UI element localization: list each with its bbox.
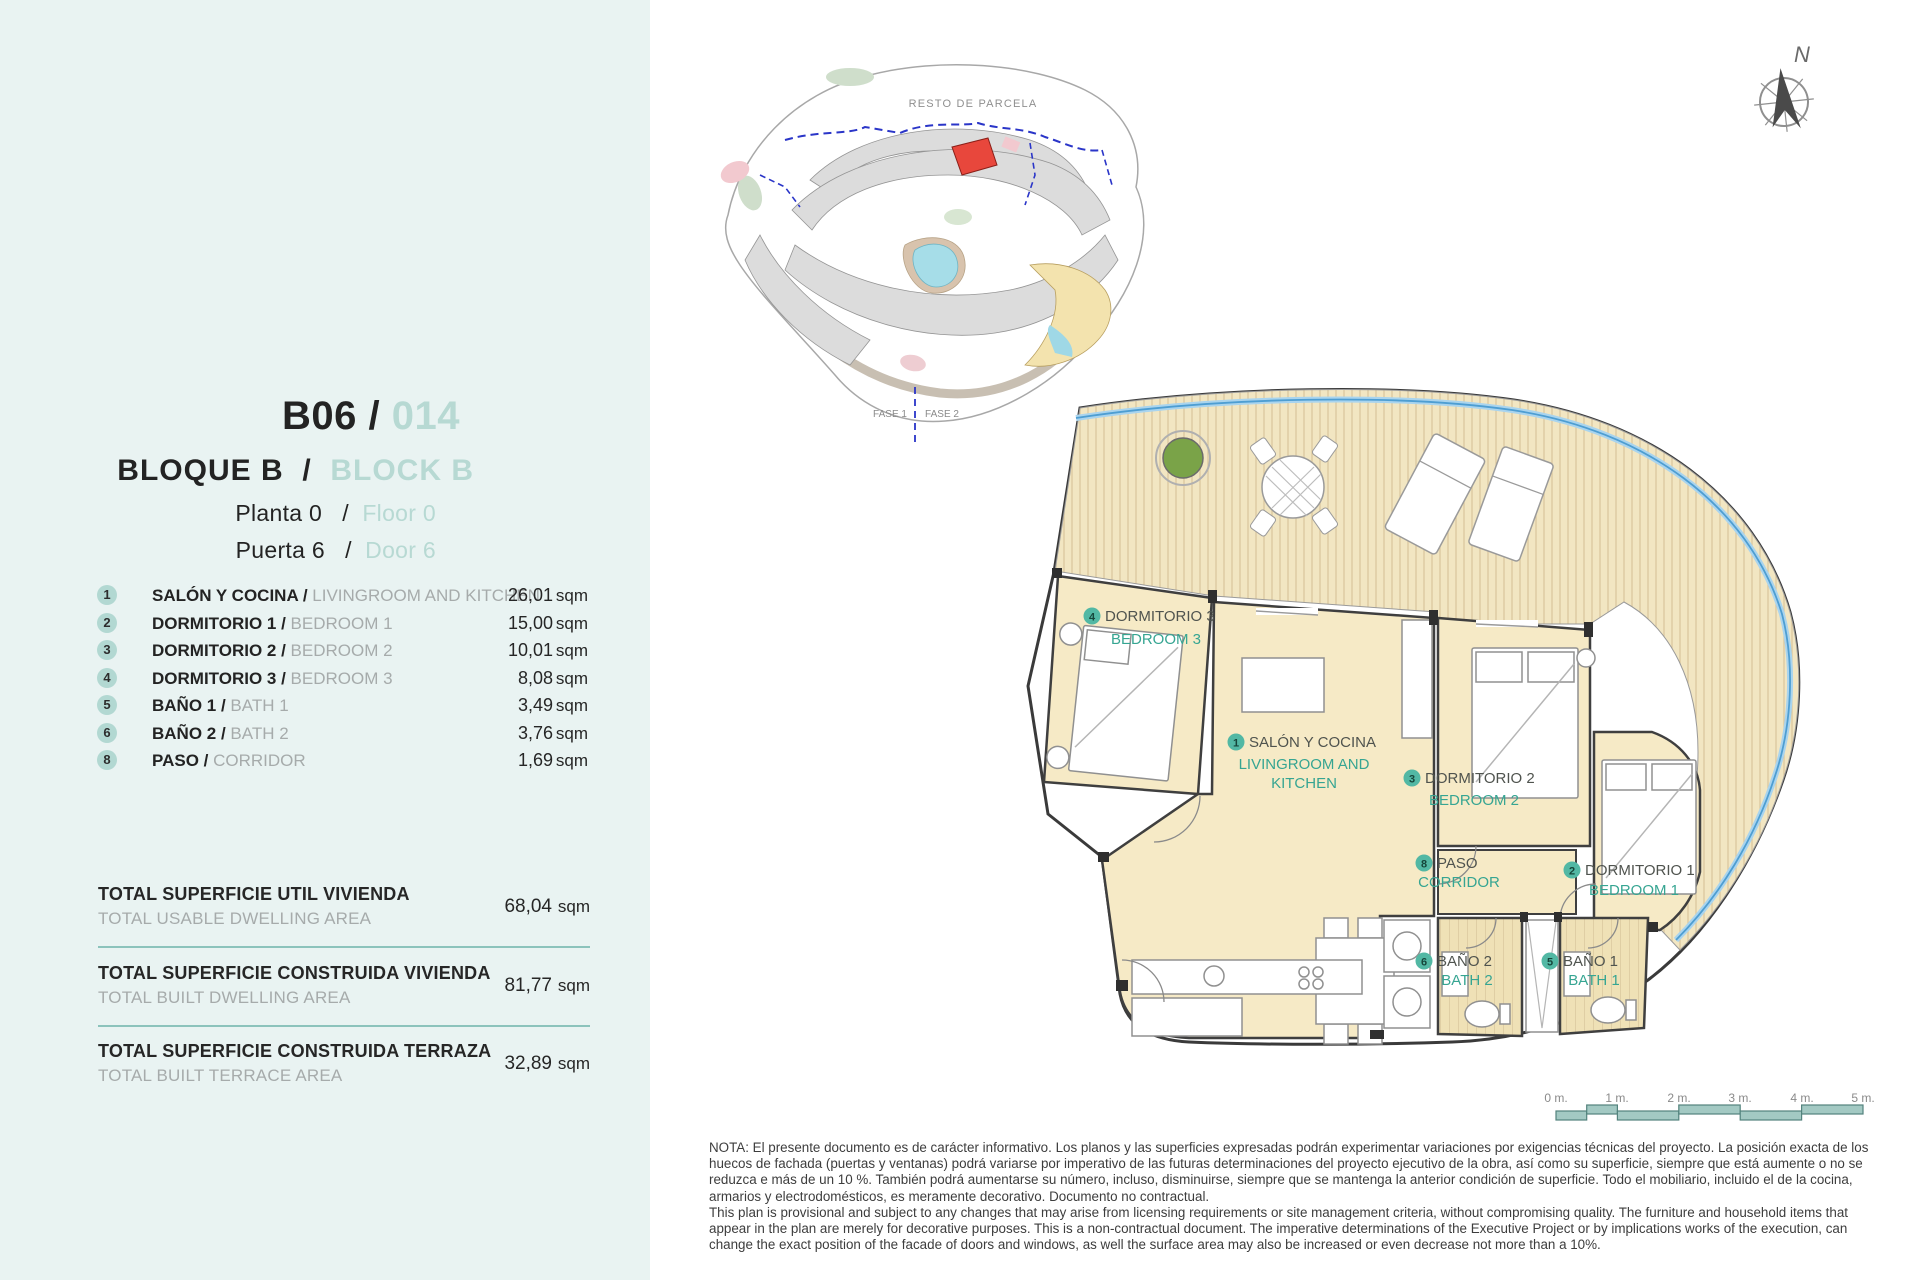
floor-separator: / [329,500,356,526]
room-area-unit: sqm [556,751,588,771]
resto-de-parcela-label: RESTO DE PARCELA [909,98,1038,110]
door-separator: / [332,537,359,563]
floorplan-document-page: { "unit": { "code": "B06", "separator": … [0,0,1920,1280]
room-area-unit: sqm [556,641,588,661]
door-es: Puerta 6 [236,537,325,563]
floor-es: Planta 0 [235,500,322,526]
total-usable-area: TOTAL SUPERFICIE UTIL VIVIENDA TOTAL USA… [98,884,590,929]
label-num: 8 [1421,859,1427,871]
room-area: 3,49 [518,695,553,716]
label-num: 4 [1089,612,1096,624]
label-num: 3 [1409,774,1415,786]
cabinet [1402,620,1432,738]
room-area: 3,76 [518,723,553,744]
north-label: N [1794,42,1810,67]
legal-note: NOTA: El presente documento es de caráct… [709,1140,1859,1253]
scale-tick-label: 2 m. [1667,1091,1690,1105]
label-es: DORMITORIO 1 [1585,862,1695,879]
note-line: change the exact position of the facade … [709,1237,1859,1253]
room-number-badge: 2 [97,613,117,633]
block-en: BLOCK B [330,454,474,487]
room-area-unit: sqm [556,586,588,606]
room-name: DORMITORIO 2 / BEDROOM 2 [152,641,393,661]
label-en: KITCHEN [1271,775,1337,792]
room-number-badge: 5 [97,695,117,715]
label-en: CORRIDOR [1418,874,1500,891]
divider [98,946,590,948]
room-area-unit: sqm [556,614,588,634]
label-es: BAÑO 1 [1563,953,1618,970]
label-es: DORMITORIO 3 [1105,608,1215,625]
label-num: 2 [1569,866,1575,878]
total-built-terrace-area: TOTAL SUPERFICIE CONSTRUIDA TERRAZA TOTA… [98,1041,590,1086]
room-row: 8 PASO / CORRIDOR 1,69 sqm [97,750,590,772]
fase1-label: FASE 1 [873,409,907,420]
north-compass-icon: N [1748,40,1826,140]
sofa [1242,658,1324,712]
label-en: BATH 1 [1568,972,1619,989]
room-area: 10,01 [508,640,553,661]
scale-tick-label: 0 m. [1544,1091,1567,1105]
note-line: armarios y electrodomésticos, es meramen… [709,1189,1859,1205]
floor-en: Floor 0 [362,500,436,526]
label-es: BAÑO 2 [1437,953,1492,970]
scale-tick-label: 1 m. [1605,1091,1628,1105]
label-es: PASO [1437,855,1478,872]
label-num: 5 [1547,957,1553,969]
label-es: SALÓN Y COCINA [1249,734,1376,751]
room-area: 26,01 [508,585,553,606]
apartment-floor-plan: 4 DORMITORIO 3 BEDROOM 3 1 SALÓN Y COCIN… [1004,312,1814,1067]
room-number-badge: 8 [97,750,117,770]
door-en: Door 6 [365,537,436,563]
scale-bar-segments [1556,1105,1863,1120]
unit-number: 014 [392,394,460,438]
room-name: BAÑO 2 / BATH 2 [152,724,289,744]
label-num: 1 [1233,738,1239,750]
block-separator: / [293,454,321,487]
label-en: BEDROOM 3 [1111,631,1201,648]
label-en: BATH 2 [1441,972,1492,989]
room-number-badge: 1 [97,585,117,605]
label-en: BEDROOM 2 [1429,792,1519,809]
room-row: 6 BAÑO 2 / BATH 2 3,76 sqm [97,723,590,745]
label-en: BEDROOM 1 [1589,882,1679,899]
note-line: NOTA: El presente documento es de caráct… [709,1140,1859,1156]
total-built-dwelling-area: TOTAL SUPERFICIE CONSTRUIDA VIVIENDA TOT… [98,963,590,1008]
scale-tick-label: 5 m. [1851,1091,1874,1105]
room-area-unit: sqm [556,724,588,744]
block-es: BLOQUE B [117,454,283,487]
note-line: appear in the plan are merely for decora… [709,1221,1859,1237]
room-area-unit: sqm [556,696,588,716]
room-name: PASO / CORRIDOR [152,751,306,771]
label-num: 6 [1421,957,1427,969]
note-line: This plan is provisional and subject to … [709,1205,1859,1221]
shower [1526,920,1558,1032]
note-line: reduzca e más de un 10 %. También podrá … [709,1172,1859,1188]
divider [98,1025,590,1027]
room-area: 1,69 [518,750,553,771]
label-en: LIVINGROOM AND [1239,756,1370,773]
room-row: 4 DORMITORIO 3 / BEDROOM 3 8,08 sqm [97,668,590,690]
room-area: 15,00 [508,613,553,634]
scale-tick-label: 3 m. [1728,1091,1751,1105]
label-es: DORMITORIO 2 [1425,770,1535,787]
fase2-label: FASE 2 [925,409,959,420]
info-sidebar: B06 / 014 BLOQUE B / BLOCK B Planta 0 / … [0,0,650,1280]
room-name: SALÓN Y COCINA / LIVINGROOM AND KITCHEN [152,586,540,606]
room-number-badge: 4 [97,668,117,688]
room-row: 5 BAÑO 1 / BATH 1 3,49 sqm [97,695,590,717]
total-unit: sqm [558,976,590,996]
unit-title: B06 / 014 [0,394,460,439]
scale-tick-label: 4 m. [1790,1091,1813,1105]
total-unit: sqm [558,897,590,917]
plant [1163,438,1203,478]
block-title: BLOQUE B / BLOCK B [0,454,474,488]
total-value: 32,89 [504,1053,552,1075]
note-line: huecos de fachada (puertas y ventanas) p… [709,1156,1859,1172]
room-row: 1 SALÓN Y COCINA / LIVINGROOM AND KITCHE… [97,585,590,607]
room-name: DORMITORIO 3 / BEDROOM 3 [152,669,393,689]
room-number-badge: 6 [97,723,117,743]
room-area: 8,08 [518,668,553,689]
total-value: 68,04 [504,896,552,918]
room-row: 2 DORMITORIO 1 / BEDROOM 1 15,00 sqm [97,613,590,635]
room-name: BAÑO 1 / BATH 1 [152,696,289,716]
floor-line: Planta 0 / Floor 0 [0,500,436,527]
room-number-badge: 3 [97,640,117,660]
unit-code: B06 [282,394,357,438]
scale-bar: 0 m. 1 m. 2 m. 3 m. 4 m. 5 m. [1522,1086,1887,1134]
green-area [826,68,874,86]
room-name: DORMITORIO 1 / BEDROOM 1 [152,614,393,634]
green-area [944,209,972,225]
unit-separator: / [369,394,381,438]
room-area-unit: sqm [556,669,588,689]
room-row: 3 DORMITORIO 2 / BEDROOM 2 10,01 sqm [97,640,590,662]
total-unit: sqm [558,1054,590,1074]
total-value: 81,77 [504,975,552,997]
door-line: Puerta 6 / Door 6 [0,537,436,564]
